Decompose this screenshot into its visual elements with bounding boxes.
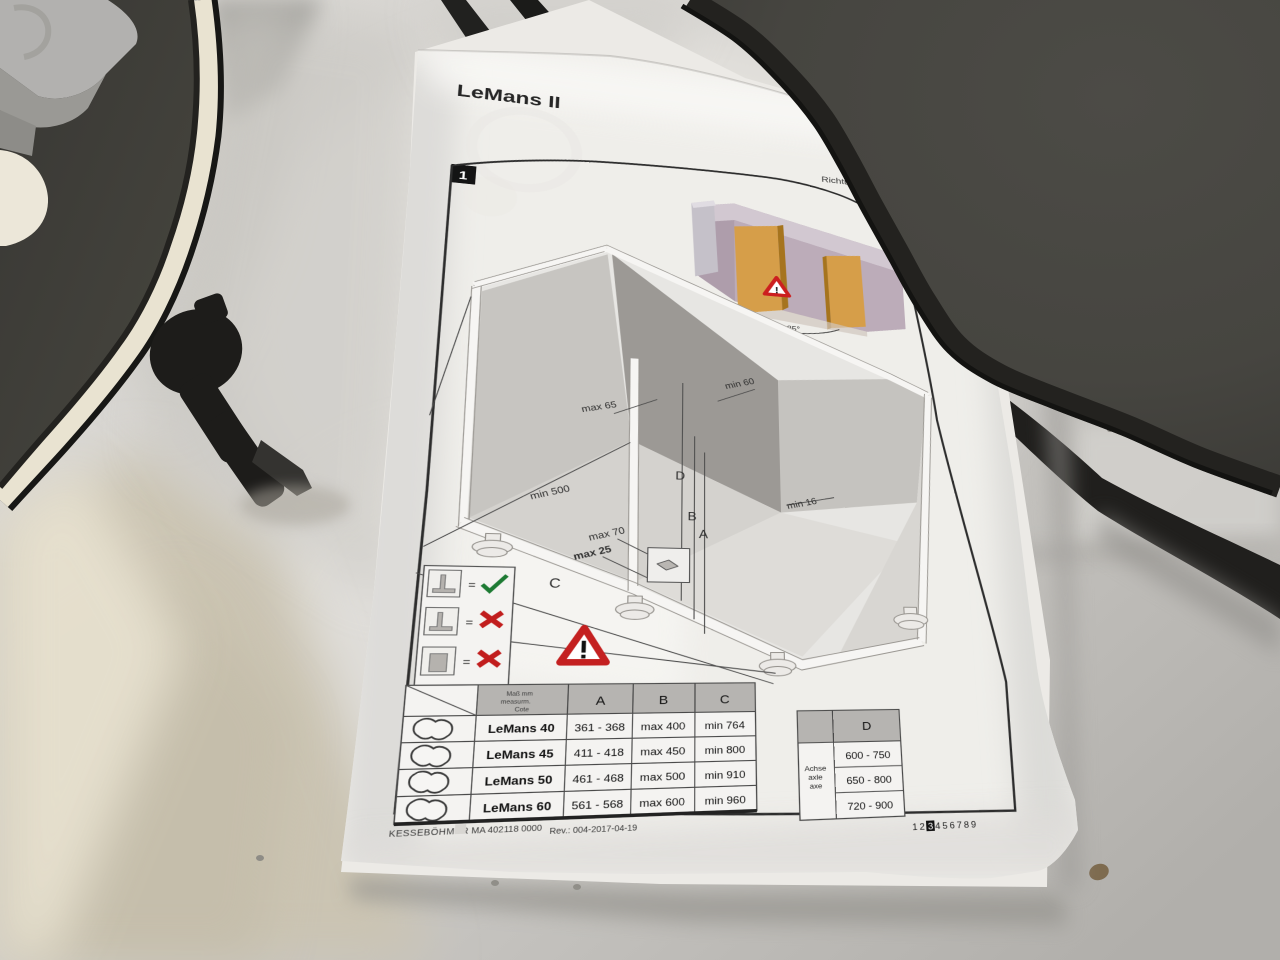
- svg-text:361 - 368: 361 - 368: [574, 722, 625, 735]
- svg-text:1: 1: [458, 169, 468, 183]
- svg-text:Achse: Achse: [804, 765, 826, 773]
- svg-text:axe: axe: [810, 783, 823, 791]
- svg-text:LeMans 45: LeMans 45: [486, 749, 554, 763]
- svg-text:B: B: [659, 693, 669, 707]
- svg-text:720 - 900: 720 - 900: [847, 800, 894, 814]
- svg-text:8: 8: [963, 819, 969, 830]
- svg-text:561 - 568: 561 - 568: [571, 798, 623, 812]
- svg-text:A: A: [699, 528, 709, 542]
- svg-text:461 - 468: 461 - 468: [572, 773, 624, 787]
- svg-text:min 910: min 910: [705, 769, 747, 782]
- svg-text:max 500: max 500: [640, 771, 686, 785]
- svg-text:=: =: [465, 618, 473, 630]
- svg-text:C: C: [720, 693, 730, 707]
- svg-text:Cote: Cote: [514, 707, 529, 714]
- svg-text:4: 4: [935, 820, 941, 831]
- svg-text:600 - 750: 600 - 750: [845, 750, 891, 763]
- svg-text:axle: axle: [808, 774, 823, 782]
- svg-text:min 764: min 764: [705, 720, 746, 732]
- svg-text:2: 2: [919, 821, 925, 832]
- svg-text:650 - 800: 650 - 800: [846, 774, 893, 787]
- svg-text:max 600: max 600: [639, 796, 685, 810]
- svg-text:1: 1: [912, 821, 918, 832]
- svg-text:LeMans 50: LeMans 50: [484, 774, 553, 789]
- svg-text:Maß mm: Maß mm: [506, 691, 534, 698]
- svg-text:B: B: [688, 510, 697, 524]
- svg-text:Richtung beachten!: Richtung beachten!: [821, 175, 906, 193]
- svg-text:=: =: [468, 580, 476, 592]
- svg-text:LeMans 60: LeMans 60: [482, 801, 551, 816]
- svg-text:=: =: [462, 657, 471, 669]
- svg-text:5: 5: [942, 820, 948, 831]
- svg-text:!: !: [775, 286, 779, 296]
- svg-text:measurm.: measurm.: [501, 699, 531, 706]
- svg-text:9: 9: [971, 819, 977, 830]
- svg-text:Rev.: 004-2017-04-19: Rev.: 004-2017-04-19: [549, 824, 637, 837]
- svg-text:A: A: [596, 694, 606, 708]
- svg-text:D: D: [675, 469, 685, 482]
- svg-text:max 450: max 450: [640, 746, 686, 759]
- svg-text:C: C: [549, 575, 562, 590]
- svg-text:LeMans 40: LeMans 40: [487, 723, 555, 736]
- svg-text:D: D: [862, 720, 872, 734]
- svg-text:max 400: max 400: [641, 721, 686, 734]
- svg-text:411 - 418: 411 - 418: [574, 747, 624, 760]
- svg-text:6: 6: [949, 820, 955, 831]
- svg-text:7: 7: [956, 819, 962, 830]
- svg-text:3: 3: [928, 821, 934, 832]
- svg-text:min 960: min 960: [705, 794, 747, 808]
- svg-text:MA 402118 0000: MA 402118 0000: [471, 824, 542, 836]
- svg-text:min 800: min 800: [705, 744, 746, 757]
